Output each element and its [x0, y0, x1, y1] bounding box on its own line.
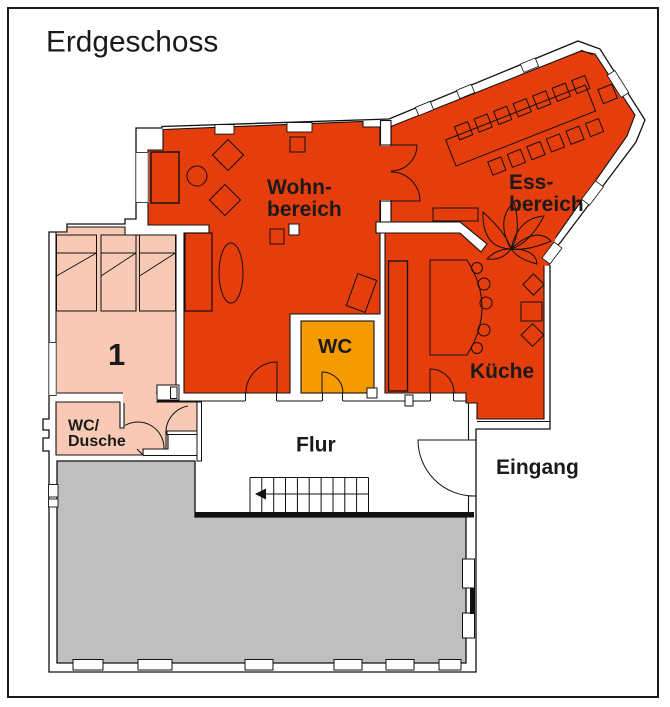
svg-text:bereich: bereich — [509, 193, 584, 216]
svg-text:Flur: Flur — [296, 434, 336, 457]
svg-text:Dusche: Dusche — [68, 433, 126, 450]
svg-text:WC: WC — [318, 335, 352, 358]
svg-text:Erdgeschoss: Erdgeschoss — [46, 26, 218, 59]
svg-text:Ess-: Ess- — [509, 171, 553, 194]
svg-text:WC/: WC/ — [68, 418, 100, 435]
svg-text:Wohn-: Wohn- — [267, 176, 332, 199]
svg-text:bereich: bereich — [267, 198, 342, 221]
svg-text:Küche: Küche — [470, 360, 534, 383]
svg-text:Eingang: Eingang — [496, 456, 579, 479]
svg-text:1: 1 — [108, 337, 125, 372]
